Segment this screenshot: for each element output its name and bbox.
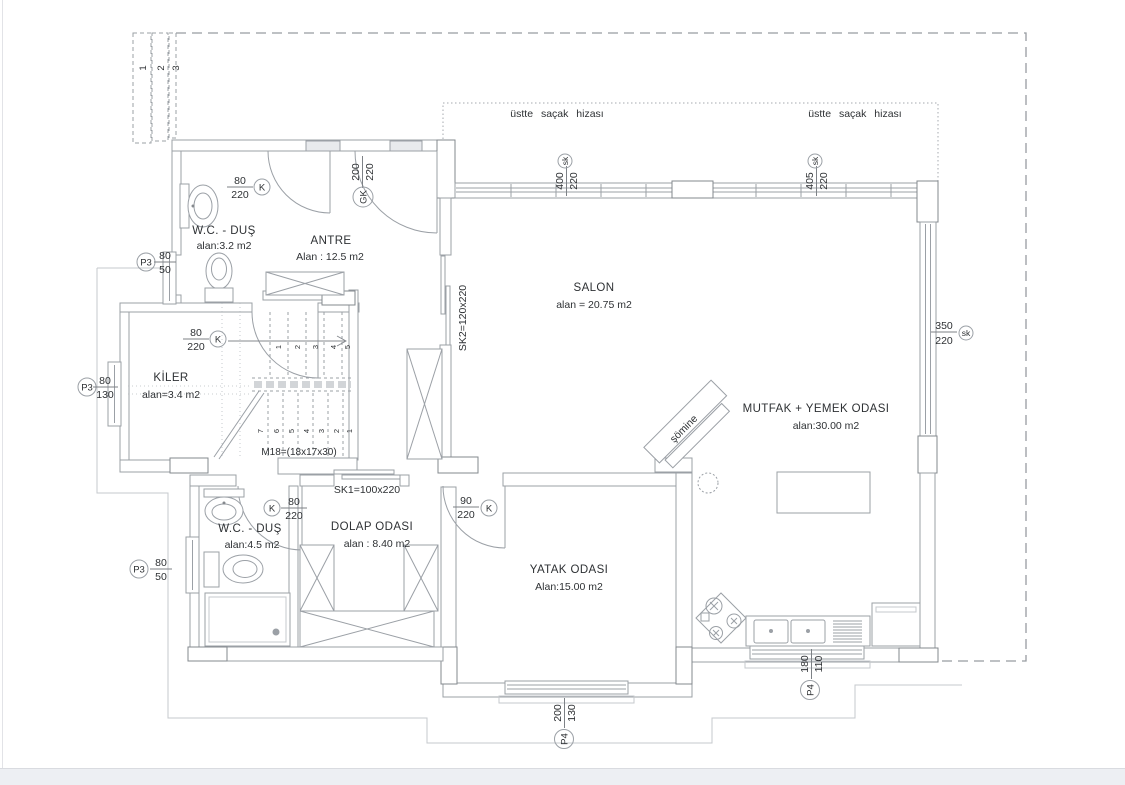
salon-window-left-tag: sk	[560, 156, 570, 165]
svg-text:220: 220	[285, 510, 303, 522]
svg-text:P3: P3	[140, 258, 152, 269]
svg-text:220: 220	[457, 509, 475, 521]
svg-text:220: 220	[364, 163, 376, 181]
svg-text:110: 110	[813, 655, 825, 672]
room-yatak-area: Alan:15.00 m2	[535, 581, 603, 593]
svg-text:80: 80	[99, 375, 111, 387]
stair-up-2: 2	[293, 345, 302, 349]
stair-up-1: 1	[274, 345, 283, 349]
salon-window-right-tag: sk	[810, 156, 820, 165]
svg-text:P3: P3	[133, 565, 145, 576]
svg-text:220: 220	[818, 172, 830, 190]
svg-text:80: 80	[155, 557, 167, 569]
svg-text:220: 220	[231, 189, 249, 201]
svg-text:200: 200	[350, 163, 362, 181]
sk1-label: SK1=100x220	[334, 484, 400, 496]
room-mutfak-name: MUTFAK + YEMEK ODASI	[743, 403, 890, 415]
svg-text:405: 405	[804, 172, 816, 190]
room-wc-top-area: alan:3.2 m2	[197, 240, 252, 252]
svg-text:220: 220	[935, 335, 953, 347]
room-yatak-name: YATAK ODASI	[530, 564, 609, 576]
upper-eaves-label-left: üstte saçak hizası	[510, 108, 603, 120]
svg-text:P3: P3	[81, 383, 93, 394]
yatak-bottom-window-tag: P4	[560, 733, 571, 745]
stair-down-6: 6	[272, 429, 281, 433]
svg-text:80: 80	[159, 250, 171, 262]
stair-up-5: 5	[343, 345, 352, 349]
room-wc-bottom-area: alan:4.5 m2	[225, 539, 280, 551]
page-footer-strip	[0, 769, 1125, 785]
svg-text:K: K	[486, 504, 493, 515]
strip-label-2: 2	[156, 65, 167, 70]
floor-plan-page: 1 2 3 üstte saçak hizası üstte saçak hiz…	[0, 0, 1125, 785]
svg-text:80: 80	[288, 496, 300, 508]
svg-text:50: 50	[155, 571, 167, 583]
shower-tray	[205, 593, 290, 646]
sk2-label: SK2=120x220	[457, 285, 469, 351]
svg-text:80: 80	[190, 327, 202, 339]
svg-text:400: 400	[554, 172, 566, 190]
stair-dimension-label: M18=(18x17x30)	[261, 447, 336, 458]
room-kiler-name: KİLER	[153, 371, 188, 384]
svg-text:350: 350	[935, 320, 953, 332]
wc-bottom-sink	[204, 489, 244, 525]
dolap-closet-left	[300, 545, 334, 611]
mutfak-bottom-window-tag: P4	[806, 684, 817, 696]
room-antre-area: Alan : 12.5 m2	[296, 251, 364, 263]
antre-door-tag: GK	[359, 189, 370, 203]
svg-text:sk: sk	[962, 328, 971, 338]
room-salon-name: SALON	[574, 282, 615, 294]
refrigerator	[872, 603, 920, 646]
svg-text:220: 220	[187, 341, 205, 353]
salon-closet	[407, 349, 442, 459]
svg-text:130: 130	[96, 389, 114, 401]
dolap-closet-right	[404, 545, 438, 611]
room-wc-top-name: W.C. - DUŞ	[192, 225, 255, 237]
room-kiler-area: alan=3.4 m2	[142, 389, 200, 401]
sliding-door-sk1	[334, 470, 400, 479]
svg-text:220: 220	[568, 172, 580, 190]
upper-eaves-label-right: üstte saçak hizası	[808, 108, 901, 120]
wc-top-sink	[180, 184, 218, 228]
room-wc-bottom-name: W.C. - DUŞ	[218, 523, 281, 535]
room-dolap-area: alan : 8.40 m2	[344, 538, 411, 550]
room-salon-area: alan = 20.75 m2	[556, 299, 632, 311]
svg-text:K: K	[259, 183, 266, 194]
room-dolap-name: DOLAP ODASI	[331, 521, 413, 533]
stair-down-4: 4	[302, 429, 311, 433]
svg-text:180: 180	[799, 655, 811, 673]
svg-text:130: 130	[566, 704, 578, 722]
stair-down-1: 1	[345, 429, 354, 433]
room-mutfak-area: alan:30.00 m2	[793, 420, 860, 432]
stair-down-7: 7	[256, 429, 265, 433]
kitchen-sink	[746, 616, 870, 646]
stair-down-2: 2	[332, 429, 341, 433]
dolap-closet-bottom	[300, 611, 434, 647]
stair-up-3: 3	[311, 345, 320, 349]
svg-text:50: 50	[159, 264, 171, 276]
svg-text:80: 80	[234, 175, 246, 187]
stair-down-3: 3	[317, 429, 326, 433]
dining-table	[777, 472, 870, 513]
svg-text:200: 200	[552, 704, 564, 722]
svg-text:K: K	[269, 504, 276, 515]
stair-up-4: 4	[329, 345, 338, 349]
room-antre-name: ANTRE	[311, 235, 352, 247]
stair-down-5: 5	[287, 429, 296, 433]
svg-text:K: K	[215, 335, 222, 346]
strip-label-3: 3	[171, 65, 182, 70]
wc-top-toilet	[205, 253, 233, 302]
strip-label-1: 1	[138, 65, 149, 70]
svg-text:90: 90	[460, 495, 472, 507]
antre-closet	[266, 272, 344, 295]
